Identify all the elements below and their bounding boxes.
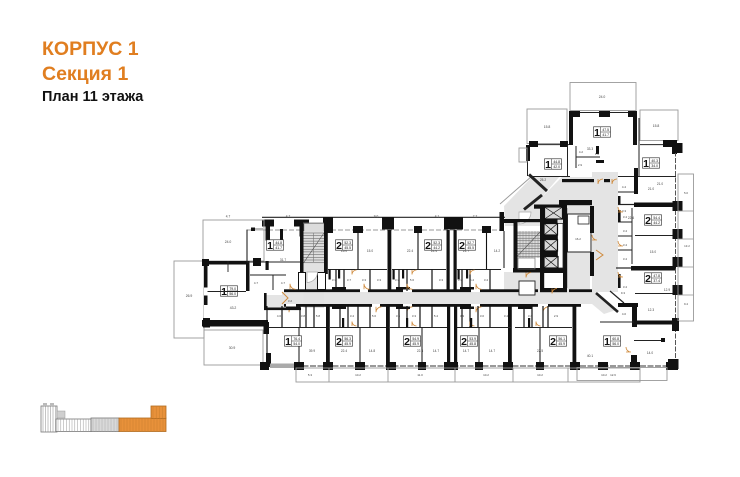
svg-text:31.7: 31.7 <box>280 258 286 262</box>
svg-text:13.2: 13.2 <box>684 244 690 248</box>
svg-text:24.0: 24.0 <box>225 240 232 244</box>
svg-text:54.4: 54.4 <box>653 216 660 220</box>
svg-text:45.8: 45.8 <box>469 342 476 346</box>
svg-text:3.3: 3.3 <box>460 314 465 318</box>
svg-text:52.7: 52.7 <box>467 241 474 245</box>
svg-text:12.6: 12.6 <box>610 373 616 377</box>
svg-text:40.1: 40.1 <box>587 354 593 358</box>
svg-text:3.3: 3.3 <box>377 278 382 282</box>
svg-text:2: 2 <box>336 240 342 252</box>
svg-text:3.3: 3.3 <box>332 278 337 282</box>
svg-text:10.2: 10.2 <box>483 373 489 377</box>
svg-text:15.0: 15.0 <box>367 249 373 253</box>
svg-text:КОРПУС 1: КОРПУС 1 <box>42 38 139 60</box>
svg-text:14.8: 14.8 <box>369 349 375 353</box>
svg-text:45.5: 45.5 <box>344 246 351 250</box>
svg-text:22.4: 22.4 <box>341 349 347 353</box>
svg-text:2: 2 <box>461 336 467 348</box>
svg-text:1: 1 <box>604 336 610 348</box>
svg-text:45.5: 45.5 <box>467 246 474 250</box>
svg-text:56.1: 56.1 <box>558 337 565 341</box>
svg-text:56.3: 56.3 <box>344 337 351 341</box>
svg-text:44.2: 44.2 <box>653 221 660 225</box>
svg-text:47.8: 47.8 <box>653 274 660 278</box>
svg-text:1: 1 <box>285 336 291 348</box>
svg-text:4.2: 4.2 <box>579 150 584 154</box>
svg-text:15.8: 15.8 <box>544 125 551 129</box>
svg-text:План 11 этажа: План 11 этажа <box>42 89 144 105</box>
svg-text:14.7: 14.7 <box>463 349 469 353</box>
svg-text:2: 2 <box>550 336 556 348</box>
svg-text:15.0: 15.0 <box>650 250 656 254</box>
svg-text:4.1: 4.1 <box>435 215 440 219</box>
svg-text:9.0: 9.0 <box>374 215 379 219</box>
svg-text:5.3: 5.3 <box>308 373 313 377</box>
svg-text:1: 1 <box>545 159 551 171</box>
svg-text:3.4: 3.4 <box>623 257 628 261</box>
svg-text:54.0: 54.0 <box>293 342 300 346</box>
svg-text:3.4: 3.4 <box>623 243 628 247</box>
svg-text:5.4: 5.4 <box>434 314 439 318</box>
svg-text:4.7: 4.7 <box>286 215 291 219</box>
svg-text:3.3: 3.3 <box>395 278 400 282</box>
svg-text:41.7: 41.7 <box>275 246 282 250</box>
svg-text:4.4: 4.4 <box>622 185 627 189</box>
svg-text:3.4: 3.4 <box>623 229 628 233</box>
svg-text:24.0: 24.0 <box>599 95 606 99</box>
svg-text:9.4: 9.4 <box>684 302 688 306</box>
svg-text:12.3: 12.3 <box>648 308 654 312</box>
svg-text:1: 1 <box>267 240 273 252</box>
svg-text:4.7: 4.7 <box>226 215 231 219</box>
svg-text:56.0: 56.0 <box>612 342 619 346</box>
svg-text:39.9: 39.9 <box>309 349 315 353</box>
svg-text:53.9: 53.9 <box>469 337 476 341</box>
svg-text:3.2: 3.2 <box>288 299 293 303</box>
svg-text:9.3: 9.3 <box>621 291 626 295</box>
svg-text:7.2: 7.2 <box>473 215 478 219</box>
svg-text:2.9: 2.9 <box>554 314 559 318</box>
svg-text:37.4: 37.4 <box>653 279 660 283</box>
svg-text:33.3: 33.3 <box>587 147 593 151</box>
svg-text:3.4: 3.4 <box>528 314 533 318</box>
svg-text:12.9: 12.9 <box>664 288 670 292</box>
svg-text:21.0: 21.0 <box>648 187 654 191</box>
svg-text:60.8: 60.8 <box>612 337 619 341</box>
svg-text:4.7: 4.7 <box>281 281 286 285</box>
svg-text:2: 2 <box>645 273 651 285</box>
svg-text:2.9: 2.9 <box>578 163 583 167</box>
svg-text:47.5: 47.5 <box>602 128 609 132</box>
svg-text:45.9: 45.9 <box>344 342 351 346</box>
svg-text:22.4: 22.4 <box>407 249 413 253</box>
svg-text:44.8: 44.8 <box>275 241 282 245</box>
svg-text:5.0: 5.0 <box>684 191 688 195</box>
svg-text:2: 2 <box>404 336 410 348</box>
svg-text:79.0: 79.0 <box>229 287 236 291</box>
svg-text:21.0: 21.0 <box>657 182 663 186</box>
svg-text:40.3: 40.3 <box>651 159 658 163</box>
svg-text:3.3: 3.3 <box>458 278 463 282</box>
svg-text:52.3: 52.3 <box>344 241 351 245</box>
svg-text:3.4: 3.4 <box>623 285 628 289</box>
svg-text:3.4: 3.4 <box>504 314 509 318</box>
svg-text:45.9: 45.9 <box>412 342 419 346</box>
svg-text:34.0: 34.0 <box>651 164 658 168</box>
svg-text:4.0: 4.0 <box>622 312 627 316</box>
svg-text:2: 2 <box>425 240 431 252</box>
svg-text:5.6: 5.6 <box>410 278 415 282</box>
svg-text:5.6: 5.6 <box>372 314 377 318</box>
svg-text:22.4: 22.4 <box>628 216 634 220</box>
svg-text:3.4: 3.4 <box>350 314 355 318</box>
svg-text:5.4: 5.4 <box>470 278 475 282</box>
svg-text:14.0: 14.0 <box>647 351 653 355</box>
svg-text:42.0: 42.0 <box>553 165 560 169</box>
svg-text:3.8: 3.8 <box>301 314 306 318</box>
svg-text:3.3: 3.3 <box>362 278 367 282</box>
svg-text:45.9: 45.9 <box>558 342 565 346</box>
svg-text:22.4: 22.4 <box>417 349 423 353</box>
svg-text:3.4: 3.4 <box>396 314 401 318</box>
svg-text:3.0: 3.0 <box>480 314 485 318</box>
svg-text:44.8: 44.8 <box>553 160 560 164</box>
svg-text:11.0: 11.0 <box>417 373 423 377</box>
svg-text:10.2: 10.2 <box>355 373 361 377</box>
svg-text:1: 1 <box>643 158 649 170</box>
svg-text:15.8: 15.8 <box>653 124 660 128</box>
svg-text:43.2: 43.2 <box>230 306 237 310</box>
svg-text:3.7: 3.7 <box>347 278 352 282</box>
svg-text:5.8: 5.8 <box>316 314 321 318</box>
svg-text:26.9: 26.9 <box>186 294 193 298</box>
svg-text:Секция 1: Секция 1 <box>42 63 128 85</box>
svg-text:1.6: 1.6 <box>595 152 600 156</box>
svg-text:44.2: 44.2 <box>433 246 440 250</box>
svg-text:1: 1 <box>594 127 600 139</box>
svg-text:25.2: 25.2 <box>540 178 546 182</box>
svg-text:4.6: 4.6 <box>277 314 282 318</box>
svg-text:10.2: 10.2 <box>601 373 607 377</box>
svg-text:22.5: 22.5 <box>537 349 543 353</box>
svg-text:2: 2 <box>645 215 651 227</box>
svg-text:3.3: 3.3 <box>412 314 417 318</box>
svg-text:14.2: 14.2 <box>494 249 500 253</box>
svg-text:56.0: 56.0 <box>229 292 236 296</box>
svg-text:3.4: 3.4 <box>484 278 489 282</box>
svg-text:3.4: 3.4 <box>623 215 628 219</box>
svg-text:2: 2 <box>459 240 465 252</box>
svg-text:3.3: 3.3 <box>439 278 444 282</box>
svg-text:14.7: 14.7 <box>433 349 439 353</box>
svg-text:54.9: 54.9 <box>412 337 419 341</box>
svg-text:10.2: 10.2 <box>537 373 543 377</box>
svg-text:30.9: 30.9 <box>229 346 236 350</box>
svg-text:41.7: 41.7 <box>602 133 609 137</box>
svg-text:14.7: 14.7 <box>489 349 495 353</box>
svg-text:4.7: 4.7 <box>254 281 259 285</box>
svg-text:76.4: 76.4 <box>293 337 300 341</box>
svg-text:2: 2 <box>336 336 342 348</box>
svg-text:16.2: 16.2 <box>575 237 581 241</box>
svg-text:52.3: 52.3 <box>433 241 440 245</box>
